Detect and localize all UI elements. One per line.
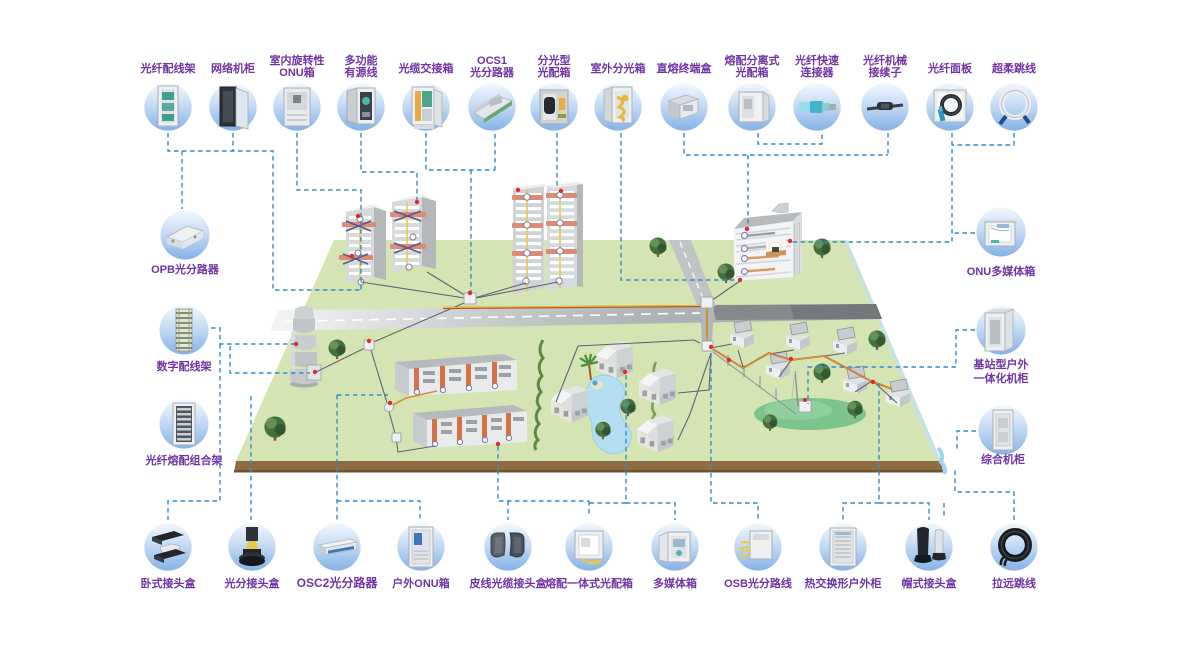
svg-text:熔配一体式光配箱: 熔配一体式光配箱 (545, 576, 633, 590)
svg-text:OSC2光分路器: OSC2光分路器 (297, 575, 379, 590)
svg-text:OCS1: OCS1 (477, 55, 507, 67)
svg-text:光纤熔配组合架: 光纤熔配组合架 (145, 453, 223, 467)
svg-text:多媒体箱: 多媒体箱 (653, 576, 697, 590)
svg-text:基站型户外: 基站型户外 (973, 357, 1029, 371)
svg-text:接续子: 接续子 (869, 65, 902, 79)
svg-text:超柔跳线: 超柔跳线 (991, 61, 1036, 75)
svg-text:网络机柜: 网络机柜 (211, 61, 255, 75)
svg-text:有源线: 有源线 (345, 65, 378, 79)
svg-text:光纤快速: 光纤快速 (794, 53, 839, 67)
svg-text:光分路器: 光分路器 (469, 65, 515, 79)
svg-text:拉远跳线: 拉远跳线 (992, 576, 1036, 590)
svg-text:光分接头盒: 光分接头盒 (224, 576, 281, 590)
svg-text:分光型: 分光型 (538, 53, 571, 67)
svg-text:光配箱: 光配箱 (735, 65, 769, 79)
svg-text:帽式接头盒: 帽式接头盒 (902, 576, 958, 590)
svg-text:熔配分离式: 熔配分离式 (725, 53, 780, 67)
svg-text:OSB光分路线: OSB光分路线 (724, 576, 792, 590)
svg-text:光纤机械: 光纤机械 (862, 53, 907, 67)
svg-text:综合机柜: 综合机柜 (981, 452, 1025, 466)
svg-text:户外ONU箱: 户外ONU箱 (392, 576, 449, 590)
svg-text:卧式接头盒: 卧式接头盒 (141, 576, 197, 590)
svg-text:OPB光分路器: OPB光分路器 (151, 262, 220, 276)
svg-text:光纤面板: 光纤面板 (927, 61, 973, 75)
svg-text:直熔终端盒: 直熔终端盒 (657, 61, 713, 75)
svg-text:ONU多媒体箱: ONU多媒体箱 (967, 264, 1035, 278)
svg-text:一体化机柜: 一体化机柜 (974, 371, 1029, 385)
svg-text:室内旋转性: 室内旋转性 (270, 53, 325, 67)
svg-text:光纤配线架: 光纤配线架 (140, 61, 196, 75)
svg-text:热交换形户外柜: 热交换形户外柜 (805, 576, 882, 590)
svg-text:连接器: 连接器 (801, 65, 835, 79)
svg-text:光配箱: 光配箱 (537, 65, 571, 79)
svg-text:皮线光缆接头盒: 皮线光缆接头盒 (469, 576, 548, 590)
svg-text:光缆交接箱: 光缆交接箱 (398, 61, 454, 75)
svg-text:多功能: 多功能 (345, 53, 378, 67)
svg-text:ONU箱: ONU箱 (279, 65, 314, 79)
svg-text:室外分光箱: 室外分光箱 (591, 61, 646, 75)
svg-text:数字配线架: 数字配线架 (157, 359, 212, 373)
